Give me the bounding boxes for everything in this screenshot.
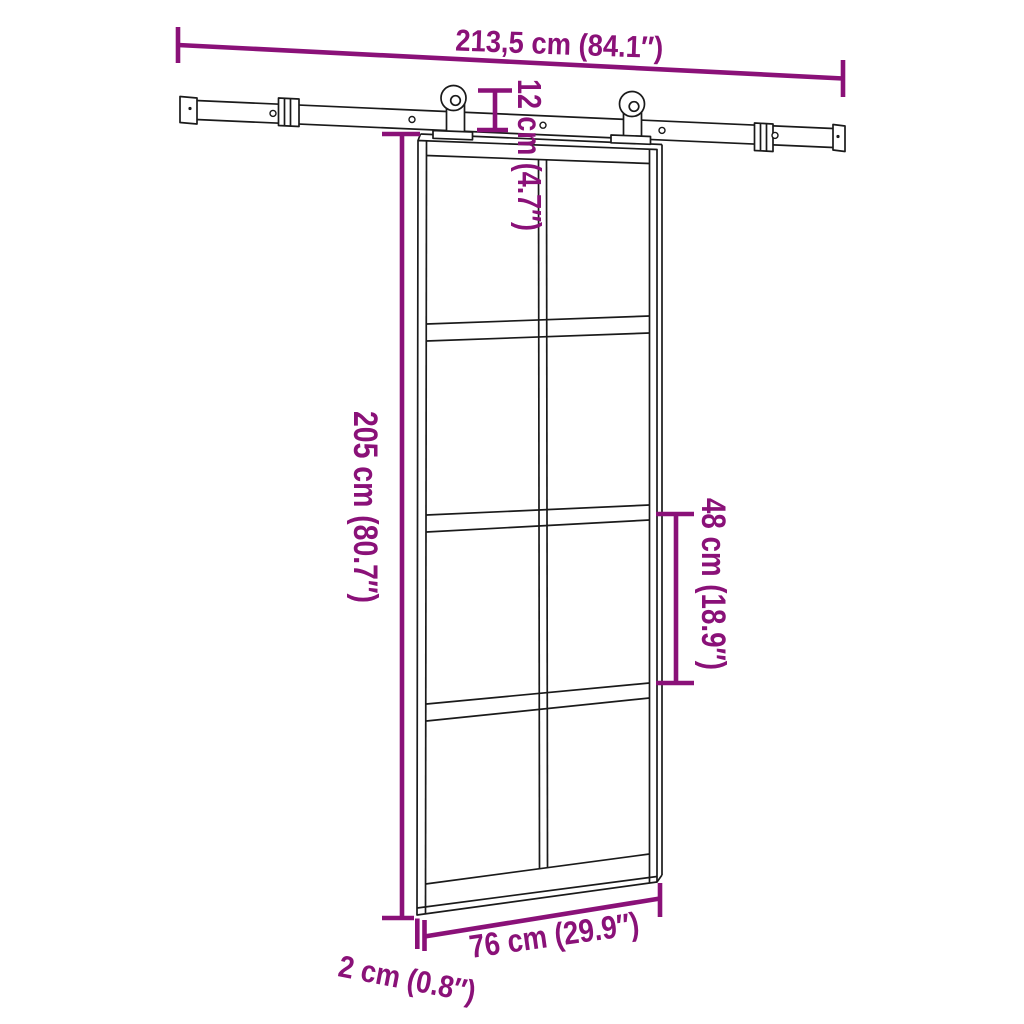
hanger-foot-plate [611,135,651,144]
hanger-foot-plate [433,131,473,140]
rail-screw-hole [659,127,665,133]
door-height-label: 205 cm (80.7″) [346,411,384,603]
hanger-height-label: 12 cm (4.7″) [511,79,548,231]
door-left-stile-inner-line [426,141,427,914]
rail-end-screw-left [188,107,191,110]
roller-wheel-hub [629,102,639,112]
rail-connector-sleeve-right [755,123,774,152]
sliding-door [417,134,662,915]
door-center-mullion-right-line [547,160,548,868]
rail-screw-hole [409,117,415,123]
roller-wheel-hub [451,96,461,106]
rail-end-cap-left [180,97,197,125]
door-front-face [417,141,657,916]
product-dimension-diagram: 213,5 cm (84.1″) 12 cm (4.7″) 205 cm (80… [0,0,1024,1024]
panel-height-label: 48 cm (18.9″) [694,498,732,670]
rail-screw-hole [772,132,778,138]
rail-screw-hole [270,110,276,116]
door-center-mullion-left-line [539,159,540,868]
rail-end-screw-right [836,135,839,138]
rail-end-cap-right [833,125,845,152]
rail-connector-sleeve-left [279,98,300,127]
diagram-canvas: 213,5 cm (84.1″) 12 cm (4.7″) 205 cm (80… [0,0,1024,1024]
